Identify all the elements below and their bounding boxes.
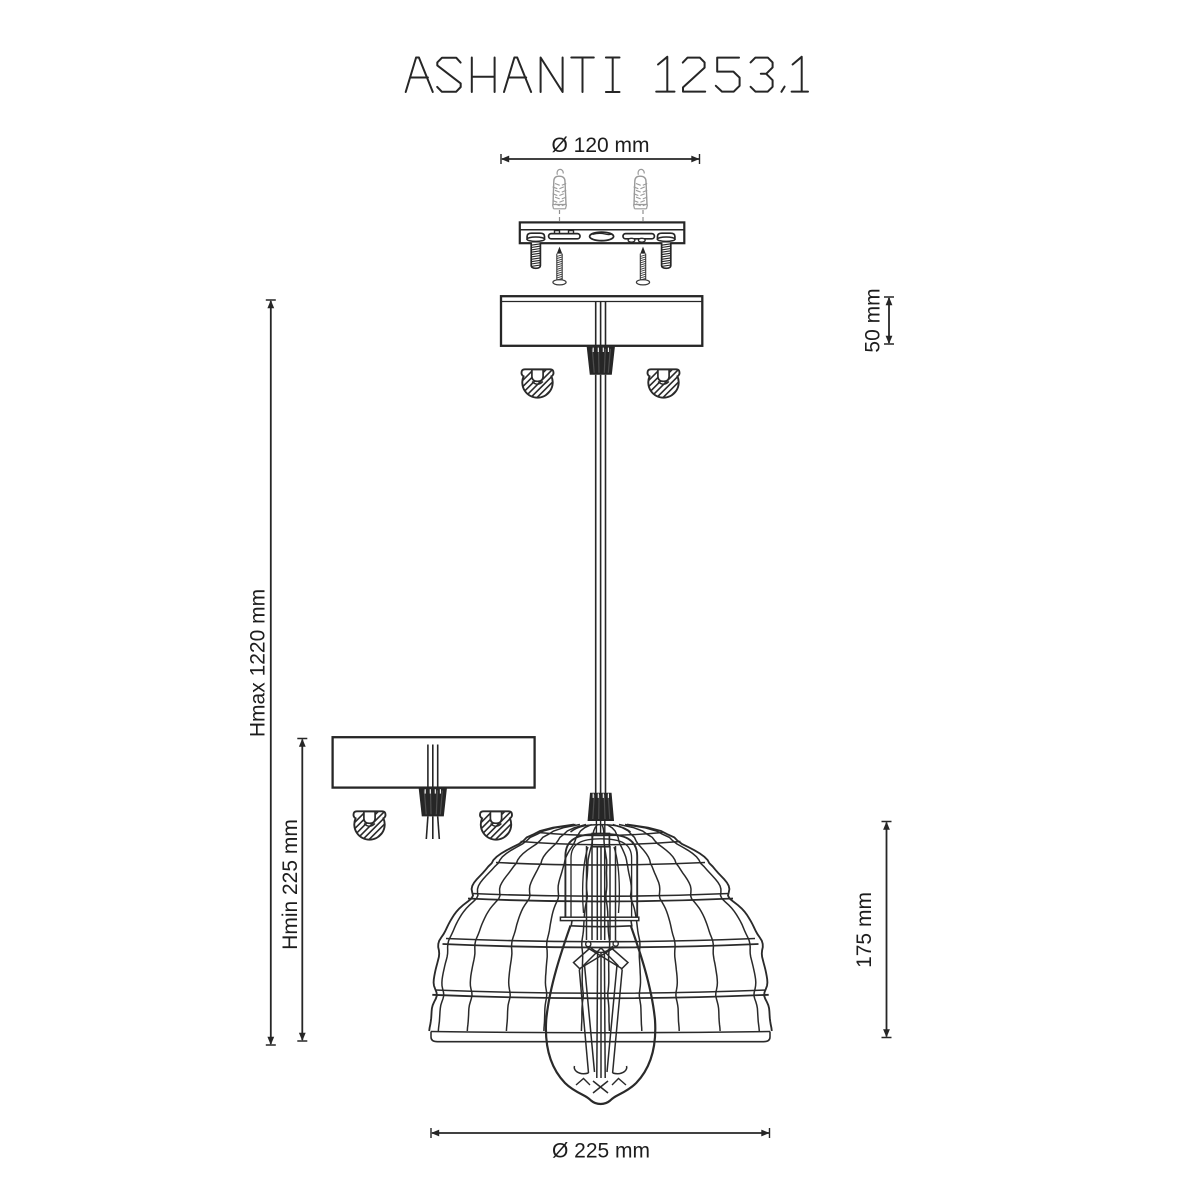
svg-text:175 mm: 175 mm xyxy=(853,892,876,968)
svg-text:Hmax 1220 mm: Hmax 1220 mm xyxy=(247,589,270,737)
svg-text:50 mm: 50 mm xyxy=(862,288,885,352)
svg-text:Ø 225 mm: Ø 225 mm xyxy=(552,1140,650,1163)
svg-text:Ø 120 mm: Ø 120 mm xyxy=(551,134,649,157)
svg-text:Hmin 225 mm: Hmin 225 mm xyxy=(279,819,302,950)
